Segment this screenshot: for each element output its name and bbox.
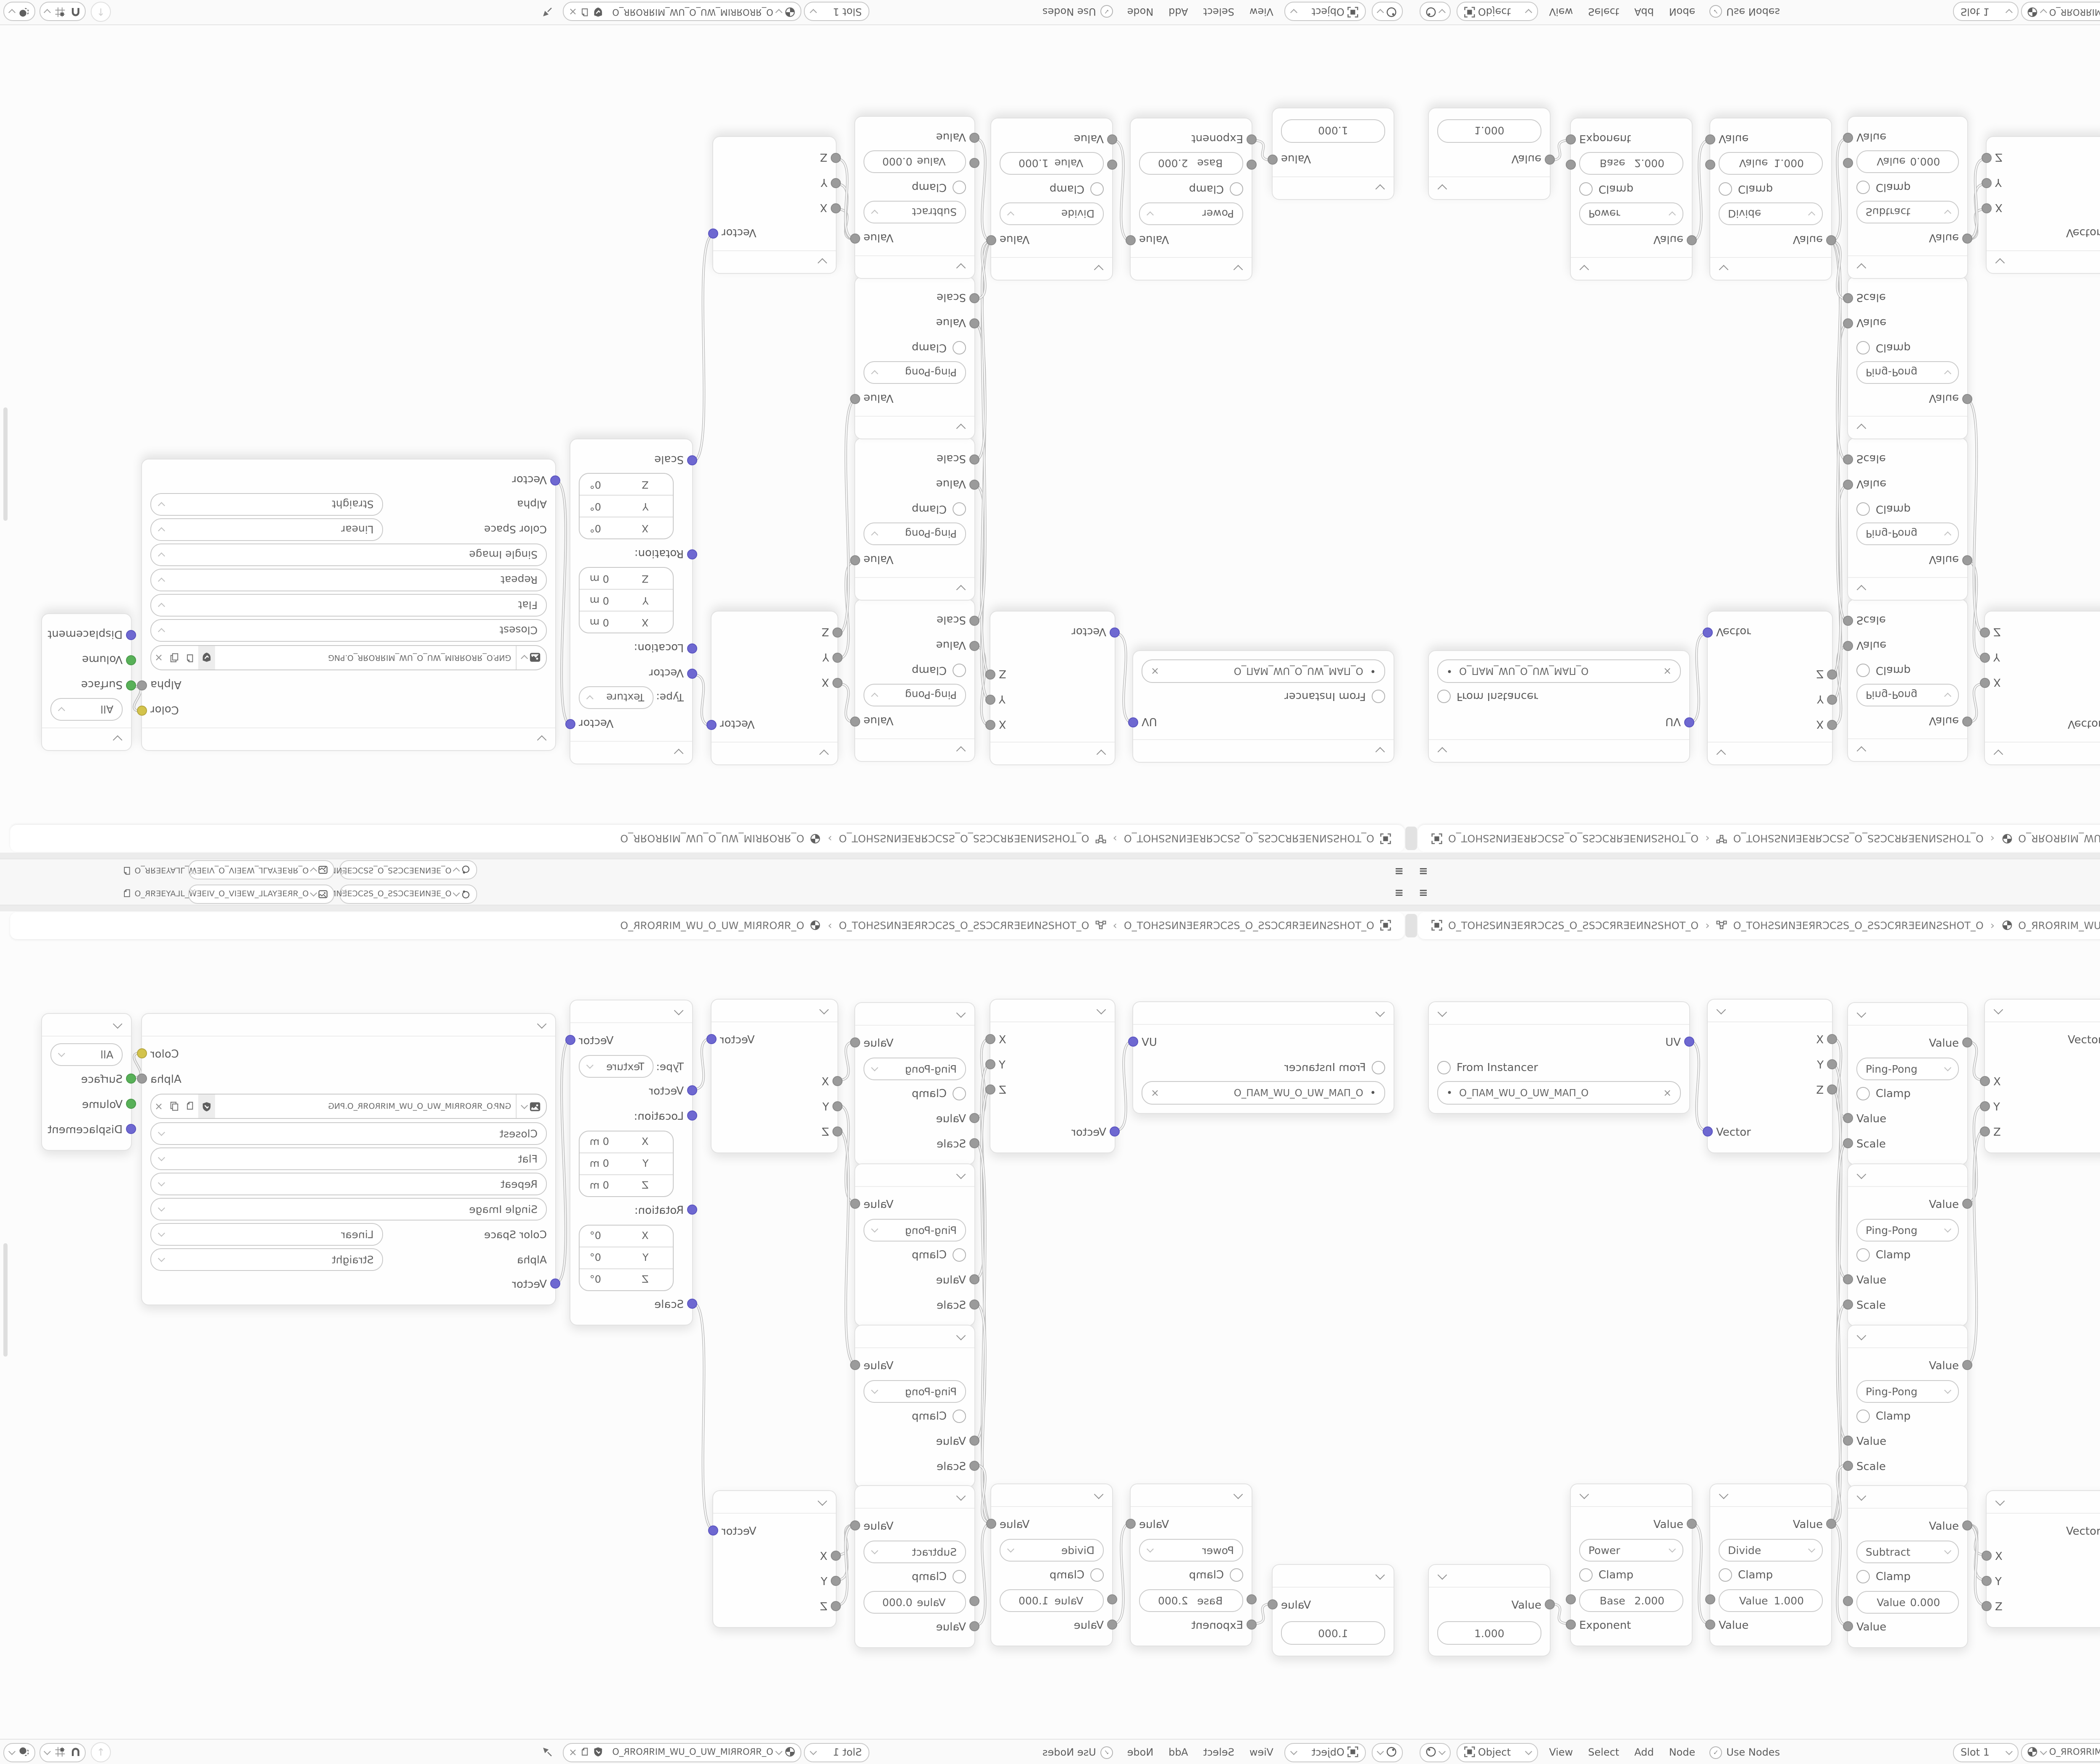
collapse-icon[interactable]	[1857, 747, 1866, 756]
checkbox[interactable]	[1230, 182, 1243, 196]
socket-value[interactable]	[850, 555, 860, 565]
checkbox[interactable]	[953, 341, 966, 354]
node-header[interactable]	[713, 250, 836, 273]
socket-value[interactable]	[969, 1113, 979, 1123]
socket-value[interactable]	[1962, 394, 1972, 404]
checkbox[interactable]	[953, 181, 966, 194]
node-combine-xyz-bottom[interactable]: VectorXYZ	[712, 1490, 837, 1628]
node-header[interactable]	[142, 727, 555, 750]
select-field[interactable]: Ping-Pong	[1856, 1218, 1959, 1241]
socket-vector[interactable]	[1684, 717, 1694, 727]
socket-vector[interactable]	[687, 1299, 697, 1309]
unlink-icon[interactable]: ×	[1663, 1087, 1672, 1099]
value-field[interactable]: 1.000	[1437, 1621, 1541, 1645]
select-field[interactable]: Ping-Pong	[864, 1380, 966, 1402]
socket-value[interactable]	[1566, 1620, 1576, 1630]
socket-value[interactable]	[1843, 616, 1853, 626]
socket-value[interactable]	[969, 293, 979, 303]
value-field[interactable]: 1.000	[1437, 119, 1541, 143]
collapse-icon[interactable]	[956, 1008, 966, 1018]
socket-vector[interactable]	[687, 549, 697, 559]
number-field[interactable]: Base2.000	[1139, 1589, 1243, 1612]
menu-add[interactable]: Add	[1168, 1746, 1188, 1758]
select-field[interactable]: Ping-Pong	[864, 362, 966, 384]
collapse-icon[interactable]	[674, 1005, 684, 1015]
vector-component-field[interactable]: X0 m	[580, 612, 673, 633]
menu-view[interactable]: View	[1249, 6, 1273, 18]
collapse-icon[interactable]	[1857, 1331, 1866, 1340]
select-field[interactable]: Subtract	[864, 201, 966, 224]
socket-value[interactable]	[969, 133, 979, 143]
socket-value[interactable]	[969, 1138, 979, 1148]
socket-value[interactable]	[1705, 1620, 1715, 1630]
uv-map-field[interactable]: •O_ПAM_WU_O_UW_MAП_O×	[1142, 659, 1385, 683]
pin-icon[interactable]	[543, 1744, 553, 1760]
select-field[interactable]: Linear	[150, 1223, 383, 1245]
socket-value[interactable]	[1843, 1113, 1853, 1123]
checkbox[interactable]	[1856, 1248, 1870, 1262]
socket-value[interactable]	[986, 1519, 996, 1529]
node-math-divide[interactable]: ValueDivideClampValue1.000Value	[990, 118, 1113, 281]
node-header[interactable]	[1848, 255, 1967, 278]
number-field[interactable]: Base2.000	[1139, 152, 1243, 175]
node-header[interactable]	[1848, 1486, 1967, 1509]
node-header[interactable]	[1429, 739, 1689, 762]
node-uv-map[interactable]: UVFrom Instancer•O_ПAM_WU_O_UW_MAП_O×	[1428, 1001, 1690, 1114]
editor-type-button[interactable]	[1420, 1743, 1450, 1762]
socket-value[interactable]	[969, 454, 979, 465]
socket-value[interactable]	[1247, 1594, 1257, 1604]
node-header[interactable]	[1429, 176, 1550, 199]
socket-value[interactable]	[1962, 717, 1972, 727]
socket-value[interactable]	[1827, 1084, 1837, 1095]
use-nodes-checkbox[interactable]: ✓ Use Nodes	[1709, 5, 1780, 18]
collapse-icon[interactable]	[1375, 185, 1385, 194]
socket-value[interactable]	[1705, 134, 1715, 144]
node-combine-xyz-bottom[interactable]: VectorXYZ	[1986, 1490, 2100, 1628]
socket-vector[interactable]	[126, 630, 136, 640]
socket-value[interactable]	[969, 1436, 979, 1446]
select-field[interactable]: Power	[1139, 203, 1243, 226]
socket-value[interactable]	[850, 1520, 860, 1530]
slot-dropdown[interactable]: Slot 1	[804, 2, 869, 21]
slot-dropdown[interactable]: Slot 1	[1953, 2, 2019, 21]
node-header[interactable]	[855, 1486, 974, 1509]
select-field[interactable]: Ping-Pong	[1856, 362, 1959, 384]
socket-value[interactable]	[969, 318, 979, 328]
socket-vector[interactable]	[1110, 1126, 1120, 1137]
checkbox[interactable]	[1856, 341, 1870, 354]
socket-vector[interactable]	[706, 1034, 717, 1044]
checkbox[interactable]	[1719, 1568, 1732, 1582]
node-header[interactable]	[1848, 1326, 1967, 1348]
socket-value[interactable]	[1827, 695, 1837, 705]
node-header[interactable]	[855, 255, 974, 278]
socket-value[interactable]	[1107, 134, 1117, 144]
menu-grip-icon[interactable]: ≡	[1395, 865, 1404, 876]
menu-node[interactable]: Node	[1127, 1746, 1154, 1758]
socket-vector[interactable]	[708, 1525, 718, 1536]
snapping-control[interactable]	[40, 1743, 86, 1762]
breadcrumb-material[interactable]: O_ЯROЯRIM_WU_O_UW_MIЯROЯR_O	[2001, 918, 2100, 934]
node-header[interactable]	[711, 1000, 837, 1022]
overlay-toggle[interactable]	[4, 2, 35, 21]
vector-component-field[interactable]: Z0°	[580, 474, 673, 496]
socket-value[interactable]	[1566, 1594, 1576, 1604]
select-field[interactable]: Closest	[150, 619, 547, 642]
node-header[interactable]	[1429, 1002, 1689, 1025]
socket-value[interactable]	[969, 1621, 979, 1631]
slot-dropdown[interactable]: Slot 1	[1953, 1743, 2019, 1762]
socket-value[interactable]	[850, 1360, 860, 1370]
socket-value[interactable]	[831, 1601, 841, 1611]
socket-value[interactable]	[1962, 1199, 1972, 1209]
value-field[interactable]: 1.000	[1281, 1621, 1385, 1645]
socket-value[interactable]	[1566, 134, 1576, 144]
select-field[interactable]: Repeat	[150, 569, 547, 592]
socket-value[interactable]	[832, 1101, 843, 1111]
socket-value[interactable]	[1247, 1620, 1257, 1630]
checkbox[interactable]	[1579, 182, 1593, 196]
vector-component-field[interactable]: X0 m	[580, 1131, 673, 1152]
socket-vector[interactable]	[687, 669, 697, 679]
select-field[interactable]: Single Image	[150, 1197, 547, 1220]
node-header[interactable]	[42, 727, 131, 750]
editor-type-button[interactable]	[1372, 2, 1403, 21]
socket-vector[interactable]	[687, 455, 697, 465]
number-field[interactable]: Base2.000	[1579, 152, 1683, 175]
shader-mode-dropdown[interactable]: Object	[1456, 1743, 1538, 1762]
node-header[interactable]	[1133, 739, 1394, 762]
number-field[interactable]: Value0.000	[864, 151, 966, 173]
socket-value[interactable]	[1982, 203, 1992, 213]
uv-map-field[interactable]: •O_ПAM_WU_O_UW_MAП_O×	[1437, 659, 1681, 683]
node-header[interactable]	[1710, 257, 1831, 280]
collapse-icon[interactable]	[1995, 259, 2005, 268]
socket-value[interactable]	[985, 669, 995, 680]
shader-mode-dropdown[interactable]: Object	[1456, 2, 1538, 21]
node-header[interactable]	[855, 1164, 974, 1187]
checkbox[interactable]	[1856, 664, 1870, 677]
breadcrumb-nodetree[interactable]: O_TOHƧSИNƎEЯRƆCƧS_O_ƧSƆCЯRƎEИNƧSHOT_O	[839, 830, 1106, 846]
node-value[interactable]: Value1.000	[1272, 108, 1394, 200]
breadcrumb-nodetree[interactable]: O_TOHƧSИNƎEЯRƆCƧS_O_ƧSƆCЯRƎEИNƧSHOT_O	[1717, 918, 1984, 934]
pin-icon[interactable]	[543, 4, 553, 20]
collapse-icon[interactable]	[818, 259, 827, 268]
menu-grip-icon[interactable]: ≡	[1419, 888, 1427, 899]
socket-value[interactable]	[985, 720, 995, 730]
socket-value[interactable]	[850, 234, 860, 244]
checkbox[interactable]	[953, 1248, 966, 1262]
checkbox[interactable]	[1090, 182, 1104, 196]
socket-value[interactable]	[1843, 293, 1853, 303]
node-header[interactable]	[855, 416, 974, 438]
node-math-ping-pong-2[interactable]: ValuePing-PongClampValueScale	[854, 1163, 975, 1326]
socket-value[interactable]	[1980, 1126, 1990, 1137]
socket-value[interactable]	[969, 641, 979, 651]
socket-value[interactable]	[850, 1199, 860, 1209]
socket-value[interactable]	[832, 1076, 843, 1086]
socket-value[interactable]	[1827, 1059, 1837, 1069]
socket-value[interactable]	[1980, 678, 1990, 688]
node-math-ping-pong-1[interactable]: ValuePing-PongClampValueScale	[1847, 599, 1968, 762]
socket-vector[interactable]	[687, 643, 697, 654]
collapse-icon[interactable]	[1994, 1005, 2003, 1014]
scene-datablock[interactable]: O_ƎEИNƎEƆCƧS_O_ƧSƆCƎEИN…	[339, 860, 477, 879]
unlink-icon[interactable]: ×	[569, 1746, 577, 1758]
select-field[interactable]: Ping-Pong	[864, 1218, 966, 1241]
checkbox[interactable]	[1090, 1568, 1104, 1582]
number-field[interactable]: Value0.000	[1856, 151, 1959, 173]
node-header[interactable]	[855, 577, 974, 600]
node-image-texture[interactable]: ColorAlphaGИP.O_ЯROЯRIM_WU_O_UW_MIЯROЯR_…	[141, 459, 556, 751]
checkbox[interactable]	[1856, 181, 1870, 194]
socket-value[interactable]	[1980, 627, 1990, 638]
image-datablock-field[interactable]: GИP.O_ЯROЯRIM_WU_O_UW_MIЯROЯR_O.PNG×	[150, 1094, 547, 1119]
socket-color[interactable]	[137, 706, 147, 716]
collapse-icon[interactable]	[1717, 1005, 1726, 1014]
view-layer-datablock[interactable]: O_ЯRƎEYA⅃L_WƎEIV_O_VIƎEW_⅃LAYƎEЯR_O	[188, 885, 334, 904]
socket-vector[interactable]	[706, 720, 717, 730]
checkbox[interactable]	[1437, 1061, 1451, 1074]
node-math-divide[interactable]: ValueDivideClampValue1.000Value	[1709, 118, 1832, 281]
node-combine-xyz-top[interactable]: VectorXYZ	[711, 999, 838, 1153]
socket-value[interactable]	[985, 1034, 995, 1044]
select-field[interactable]: Straight	[150, 493, 383, 516]
select-field[interactable]: Subtract	[1856, 1540, 1959, 1563]
scrollbar-thumb[interactable]	[3, 407, 8, 521]
socket-vector[interactable]	[565, 719, 575, 729]
node-math-ping-pong-1[interactable]: ValuePing-PongClampValueScale	[854, 599, 975, 762]
collapse-icon[interactable]	[1097, 750, 1106, 760]
select-field[interactable]: Ping-Pong	[1856, 1057, 1959, 1080]
socket-value[interactable]	[1827, 669, 1837, 680]
node-editor-canvas[interactable]: UVFrom Instancer•O_ПAM_WU_O_UW_MAП_O×XYZ…	[1411, 882, 2100, 1764]
collapse-icon[interactable]	[819, 1005, 829, 1014]
socket-value[interactable]	[850, 1037, 860, 1047]
node-material-output[interactable]: AllSurfaceVolumeDisplacement	[41, 613, 132, 751]
node-header[interactable]	[570, 1000, 692, 1023]
collapse-icon[interactable]	[1580, 1489, 1589, 1499]
socket-vector[interactable]	[1703, 1126, 1713, 1137]
region-edge-tab[interactable]	[1405, 827, 1411, 850]
node-math-ping-pong-3[interactable]: ValuePing-PongClampValueScale	[1847, 1325, 1968, 1488]
shader-mode-dropdown[interactable]: Object	[1284, 2, 1366, 21]
node-editor-canvas[interactable]: UVFrom Instancer•O_ПAM_WU_O_UW_MAП_O×XYZ…	[0, 0, 1411, 882]
region-edge-tab[interactable]	[1411, 914, 1417, 937]
node-header[interactable]	[990, 1000, 1115, 1022]
collapse-icon[interactable]	[1857, 424, 1866, 434]
menu-select[interactable]: Select	[1203, 6, 1234, 18]
new-copy-icon[interactable]	[123, 886, 132, 902]
socket-value[interactable]	[1107, 1620, 1117, 1630]
socket-value[interactable]	[1843, 480, 1853, 490]
menu-select[interactable]: Select	[1203, 1746, 1234, 1758]
node-header[interactable]	[713, 1491, 836, 1514]
socket-value[interactable]	[832, 653, 843, 663]
editor-type-button[interactable]	[1372, 1743, 1403, 1762]
vector-component-field[interactable]: X0°	[580, 518, 673, 539]
node-combine-xyz-top[interactable]: VectorXYZ	[1984, 999, 2100, 1153]
select-field[interactable]: Texture	[579, 687, 654, 709]
select-field[interactable]: Ping-Pong	[864, 684, 966, 707]
socket-value[interactable]	[1982, 1551, 1992, 1561]
breadcrumb-object[interactable]: O_TOHƧSИNƎEЯRƆCƧS_O_ƧSƆCЯRƎEИNƧSHOT_O	[1431, 830, 1698, 846]
socket-value[interactable]	[969, 480, 979, 490]
socket-value[interactable]	[1843, 1596, 1853, 1606]
collapse-icon[interactable]	[1438, 748, 1447, 757]
socket-shader[interactable]	[126, 680, 136, 690]
socket-value[interactable]	[1545, 155, 1555, 165]
menu-view[interactable]: View	[1549, 6, 1573, 18]
socket-value[interactable]	[969, 1596, 979, 1606]
socket-value[interactable]	[969, 1274, 979, 1284]
menu-select[interactable]: Select	[1588, 1746, 1619, 1758]
node-header[interactable]	[1708, 742, 1832, 764]
socket-value[interactable]	[831, 153, 841, 163]
node-value[interactable]: Value1.000	[1428, 1564, 1551, 1656]
socket-value[interactable]	[1545, 1599, 1555, 1609]
node-header[interactable]	[1987, 250, 2100, 273]
collapse-icon[interactable]	[956, 424, 966, 434]
socket-value[interactable]	[832, 627, 843, 638]
socket-value[interactable]	[831, 203, 841, 213]
menu-node[interactable]: Node	[1669, 1746, 1696, 1758]
checkbox[interactable]	[953, 1570, 966, 1583]
node-image-texture[interactable]: ColorAlphaGИP.O_ЯROЯRIM_WU_O_UW_MIЯROЯR_…	[141, 1013, 556, 1305]
use-nodes-checkbox[interactable]: ✓ Use Nodes	[1042, 1746, 1113, 1759]
select-field[interactable]: Power	[1579, 203, 1683, 226]
collapse-icon[interactable]	[1719, 265, 1729, 275]
region-edge-tab[interactable]	[1405, 914, 1411, 937]
collapse-icon[interactable]	[1438, 185, 1447, 194]
node-header[interactable]	[855, 1326, 974, 1348]
socket-value[interactable]	[1962, 1037, 1972, 1047]
socket-value[interactable]	[1843, 454, 1853, 465]
socket-value[interactable]	[1843, 1274, 1853, 1284]
select-field[interactable]: Closest	[150, 1122, 547, 1144]
node-uv-map[interactable]: UVFrom Instancer•O_ПAM_WU_O_UW_MAП_O×	[1132, 1001, 1394, 1114]
number-field[interactable]: Value1.000	[1719, 152, 1823, 175]
socket-value[interactable]	[1826, 1519, 1836, 1529]
socket-value[interactable]	[1687, 1519, 1697, 1529]
number-field[interactable]: Value1.000	[1719, 1589, 1823, 1612]
socket-vector[interactable]	[1128, 717, 1138, 727]
socket-value[interactable]	[1982, 178, 1992, 188]
menu-add[interactable]: Add	[1634, 1746, 1654, 1758]
socket-value[interactable]	[1982, 1576, 1992, 1586]
socket-value[interactable]	[1826, 235, 1836, 245]
socket-vector[interactable]	[1128, 1037, 1138, 1047]
node-math-power[interactable]: ValuePowerClampBase2.000Exponent	[1130, 118, 1252, 281]
node-math-power[interactable]: ValuePowerClampBase2.000Exponent	[1570, 118, 1693, 281]
vector-component-field[interactable]: Y0°	[580, 496, 673, 518]
node-math-divide[interactable]: ValueDivideClampValue1.000Value	[990, 1483, 1113, 1646]
node-math-power[interactable]: ValuePowerClampBase2.000Exponent	[1570, 1483, 1693, 1646]
checkbox[interactable]	[1372, 1061, 1385, 1074]
collapse-icon[interactable]	[1375, 1007, 1385, 1017]
socket-shader[interactable]	[126, 1074, 136, 1084]
collapse-icon[interactable]	[1857, 1491, 1866, 1501]
socket-value[interactable]	[1843, 158, 1853, 168]
node-math-subtract[interactable]: ValueSubtractClampValue0.000Value	[1847, 1485, 1968, 1648]
breadcrumb-material[interactable]: O_ЯROЯRIM_WU_O_UW_MIЯROЯR_O	[620, 830, 821, 846]
node-header[interactable]	[1985, 1000, 2100, 1022]
socket-value[interactable]	[969, 158, 979, 168]
collapse-icon[interactable]	[1094, 1489, 1104, 1499]
go-parent-node-tree-button[interactable]: ↑	[91, 1742, 111, 1762]
socket-value[interactable]	[969, 616, 979, 626]
node-header[interactable]	[1429, 1565, 1550, 1588]
node-math-subtract[interactable]: ValueSubtractClampValue0.000Value	[854, 116, 975, 279]
node-mapping[interactable]: VectorType:TextureVectorLocation:X0 mY0 …	[570, 438, 693, 764]
socket-value[interactable]	[1843, 1621, 1853, 1631]
menu-add[interactable]: Add	[1634, 6, 1654, 18]
collapse-icon[interactable]	[674, 749, 684, 759]
socket-value[interactable]	[1566, 160, 1576, 170]
checkbox[interactable]	[1437, 690, 1451, 703]
value-field[interactable]: 1.000	[1281, 119, 1385, 143]
node-math-ping-pong-1[interactable]: ValuePing-PongClampValueScale	[1847, 1002, 1968, 1165]
node-editor-canvas[interactable]: UVFrom Instancer•O_ПAM_WU_O_UW_MAП_O×XYZ…	[0, 882, 1411, 1764]
node-math-ping-pong-2[interactable]: ValuePing-PongClampValueScale	[1847, 438, 1968, 601]
collapse-icon[interactable]	[956, 1331, 966, 1340]
node-editor-canvas[interactable]: UVFrom Instancer•O_ПAM_WU_O_UW_MAП_O×XYZ…	[1411, 0, 2100, 882]
select-field[interactable]: Ping-Pong	[1856, 1380, 1959, 1402]
node-mapping[interactable]: VectorType:TextureVectorLocation:X0 mY0 …	[570, 1000, 693, 1326]
socket-value[interactable]	[1843, 641, 1853, 651]
socket-value[interactable]	[1705, 1594, 1715, 1604]
socket-value[interactable]	[1268, 1599, 1278, 1609]
collapse-icon[interactable]	[1857, 1169, 1866, 1179]
select-field[interactable]: Texture	[579, 1055, 654, 1077]
menu-grip-icon[interactable]: ≡	[1419, 865, 1427, 876]
socket-value[interactable]	[1980, 653, 1990, 663]
node-header[interactable]	[1273, 1565, 1394, 1588]
collapse-icon[interactable]	[1994, 750, 2003, 760]
material-datablock[interactable]: O_ЯROЯRIM_WU_O_UW_MIЯROЯR_O ×	[2021, 1743, 2100, 1762]
socket-value[interactable]	[1843, 1461, 1853, 1471]
node-header[interactable]	[855, 738, 974, 761]
menu-view[interactable]: View	[1549, 1746, 1573, 1758]
socket-value[interactable]	[1268, 155, 1278, 165]
new-copy-icon[interactable]	[123, 862, 132, 878]
node-material-output[interactable]: AllSurfaceVolumeDisplacement	[41, 1013, 132, 1151]
socket-value[interactable]	[1827, 720, 1837, 730]
socket-vector[interactable]	[565, 1035, 575, 1045]
select-field[interactable]: Ping-Pong	[1856, 684, 1959, 707]
new-copy-icon[interactable]	[182, 646, 198, 669]
new-copy-icon[interactable]	[580, 4, 590, 20]
socket-value[interactable]	[1843, 1299, 1853, 1310]
node-separate-xyz[interactable]: XYZVector	[1707, 611, 1833, 765]
vector-component-field[interactable]: Z0 m	[580, 568, 673, 590]
vector-component-field[interactable]: Z0 m	[580, 1174, 673, 1196]
socket-value[interactable]	[985, 1084, 995, 1095]
checkbox[interactable]	[1230, 1568, 1243, 1582]
socket-value[interactable]	[1962, 1360, 1972, 1370]
new-copy-icon[interactable]	[580, 1744, 590, 1760]
collapse-icon[interactable]	[956, 1169, 966, 1179]
node-value[interactable]: Value1.000	[1428, 108, 1551, 200]
unlink-icon[interactable]: ×	[1151, 1087, 1159, 1099]
node-header[interactable]	[1133, 1002, 1394, 1025]
socket-value[interactable]	[985, 1059, 995, 1069]
collapse-icon[interactable]	[956, 1491, 966, 1501]
select-field[interactable]: Repeat	[150, 1172, 547, 1195]
socket-vector[interactable]	[687, 1110, 697, 1121]
scene-datablock[interactable]: O_ƎEИNƎEƆCƧS_O_ƧSƆCƎEИN…	[339, 885, 477, 904]
